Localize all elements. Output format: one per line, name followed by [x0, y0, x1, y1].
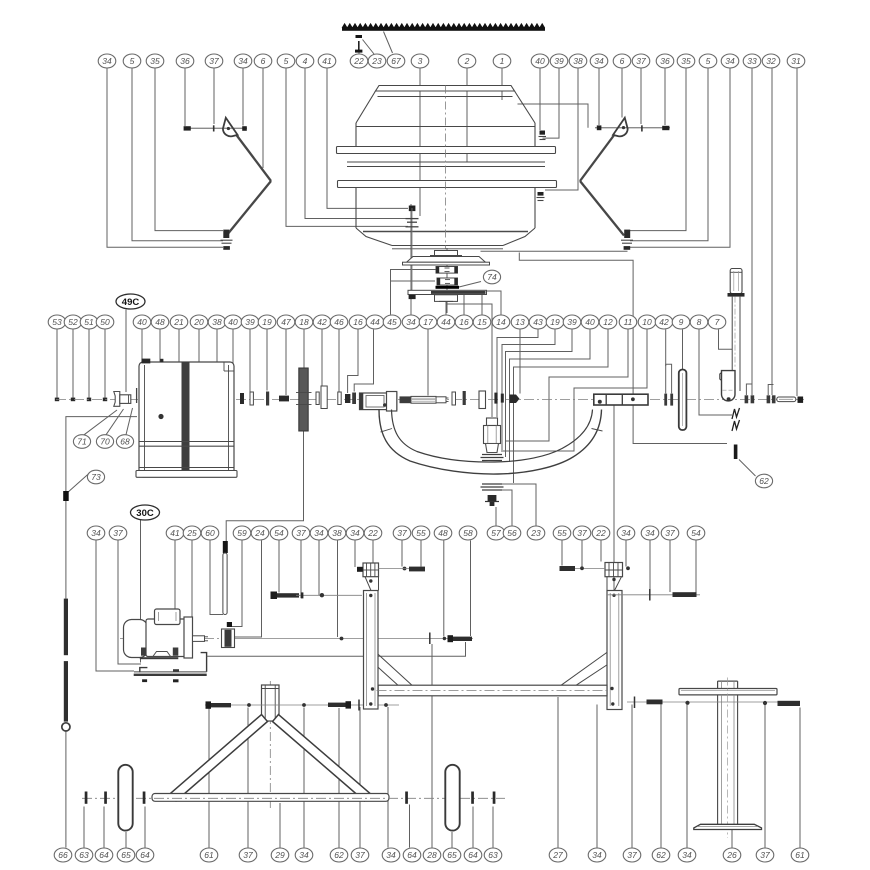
svg-text:34: 34 [406, 317, 416, 327]
svg-text:3: 3 [418, 56, 423, 66]
svg-text:43: 43 [533, 317, 543, 327]
svg-text:64: 64 [468, 850, 478, 860]
svg-text:58: 58 [463, 528, 473, 538]
svg-text:25: 25 [186, 528, 197, 538]
svg-text:34: 34 [725, 56, 735, 66]
svg-text:55: 55 [557, 528, 567, 538]
svg-text:37: 37 [113, 528, 123, 538]
svg-text:46: 46 [334, 317, 344, 327]
svg-text:39: 39 [567, 317, 577, 327]
svg-text:13: 13 [515, 317, 525, 327]
svg-text:23: 23 [371, 56, 382, 66]
svg-text:42: 42 [317, 317, 327, 327]
svg-text:28: 28 [426, 850, 437, 860]
svg-text:21: 21 [173, 317, 184, 327]
svg-text:44: 44 [370, 317, 380, 327]
svg-text:38: 38 [332, 528, 342, 538]
svg-text:34: 34 [238, 56, 248, 66]
svg-text:36: 36 [660, 56, 670, 66]
svg-text:62: 62 [759, 476, 769, 486]
svg-text:7: 7 [715, 317, 720, 327]
svg-text:40: 40 [228, 317, 238, 327]
svg-text:5: 5 [130, 56, 135, 66]
svg-text:63: 63 [79, 850, 89, 860]
svg-text:60: 60 [205, 528, 215, 538]
svg-text:34: 34 [592, 850, 602, 860]
svg-text:41: 41 [170, 528, 180, 538]
svg-text:16: 16 [353, 317, 363, 327]
svg-text:27: 27 [552, 850, 563, 860]
svg-text:34: 34 [594, 56, 604, 66]
svg-text:63: 63 [488, 850, 498, 860]
svg-text:37: 37 [627, 850, 637, 860]
svg-text:37: 37 [665, 528, 675, 538]
svg-text:22: 22 [353, 56, 364, 66]
svg-text:33: 33 [747, 56, 757, 66]
svg-text:47: 47 [281, 317, 291, 327]
svg-text:10: 10 [642, 317, 652, 327]
svg-text:34: 34 [350, 528, 360, 538]
svg-text:64: 64 [140, 850, 150, 860]
svg-text:65: 65 [447, 850, 457, 860]
svg-text:51: 51 [84, 317, 94, 327]
svg-text:67: 67 [391, 56, 401, 66]
svg-text:34: 34 [314, 528, 324, 538]
svg-text:66: 66 [58, 850, 68, 860]
svg-text:32: 32 [766, 56, 776, 66]
svg-text:42: 42 [659, 317, 669, 327]
svg-text:29: 29 [274, 850, 285, 860]
svg-text:34: 34 [102, 56, 112, 66]
svg-text:1: 1 [500, 56, 505, 66]
svg-text:9: 9 [679, 317, 684, 327]
svg-text:23: 23 [530, 528, 541, 538]
svg-text:6: 6 [261, 56, 266, 66]
svg-text:45: 45 [387, 317, 397, 327]
svg-text:54: 54 [274, 528, 284, 538]
svg-text:30C: 30C [136, 508, 154, 519]
svg-text:15: 15 [477, 317, 487, 327]
svg-text:26: 26 [726, 850, 737, 860]
svg-text:16: 16 [459, 317, 469, 327]
svg-text:56: 56 [507, 528, 517, 538]
svg-text:41: 41 [322, 56, 332, 66]
svg-text:14: 14 [496, 317, 506, 327]
svg-text:5: 5 [706, 56, 711, 66]
svg-text:37: 37 [760, 850, 770, 860]
svg-text:18: 18 [299, 317, 309, 327]
svg-text:24: 24 [254, 528, 265, 538]
svg-text:37: 37 [577, 528, 587, 538]
svg-text:71: 71 [77, 437, 87, 447]
svg-text:12: 12 [603, 317, 613, 327]
svg-text:62: 62 [656, 850, 666, 860]
svg-text:73: 73 [91, 472, 101, 482]
svg-text:38: 38 [573, 56, 583, 66]
svg-text:19: 19 [550, 317, 560, 327]
svg-text:40: 40 [585, 317, 595, 327]
svg-text:52: 52 [68, 317, 78, 327]
svg-text:39: 39 [245, 317, 255, 327]
svg-text:17: 17 [423, 317, 433, 327]
svg-text:64: 64 [99, 850, 109, 860]
svg-text:34: 34 [645, 528, 655, 538]
svg-text:34: 34 [299, 850, 309, 860]
svg-text:37: 37 [636, 56, 646, 66]
svg-text:54: 54 [691, 528, 701, 538]
svg-text:19: 19 [262, 317, 272, 327]
svg-text:34: 34 [386, 850, 396, 860]
svg-text:40: 40 [535, 56, 545, 66]
svg-text:22: 22 [595, 528, 606, 538]
svg-text:70: 70 [100, 437, 110, 447]
svg-text:34: 34 [621, 528, 631, 538]
svg-text:65: 65 [121, 850, 131, 860]
svg-text:37: 37 [397, 528, 407, 538]
svg-text:61: 61 [795, 850, 805, 860]
svg-text:74: 74 [487, 272, 497, 282]
svg-text:37: 37 [209, 56, 219, 66]
svg-text:34: 34 [91, 528, 101, 538]
svg-text:34: 34 [682, 850, 692, 860]
svg-text:11: 11 [624, 317, 633, 327]
svg-text:4: 4 [303, 56, 308, 66]
svg-text:38: 38 [212, 317, 222, 327]
svg-text:8: 8 [697, 317, 702, 327]
svg-text:22: 22 [367, 528, 378, 538]
svg-text:55: 55 [416, 528, 426, 538]
svg-text:68: 68 [120, 437, 130, 447]
svg-text:37: 37 [296, 528, 306, 538]
svg-text:59: 59 [237, 528, 247, 538]
svg-text:2: 2 [464, 56, 470, 66]
svg-text:49C: 49C [122, 297, 140, 308]
svg-text:35: 35 [681, 56, 691, 66]
svg-text:64: 64 [407, 850, 417, 860]
svg-text:50: 50 [100, 317, 110, 327]
svg-text:37: 37 [243, 850, 253, 860]
svg-text:57: 57 [491, 528, 501, 538]
svg-text:37: 37 [355, 850, 365, 860]
svg-text:62: 62 [334, 850, 344, 860]
svg-text:40: 40 [137, 317, 147, 327]
svg-text:53: 53 [52, 317, 62, 327]
svg-text:48: 48 [155, 317, 165, 327]
svg-text:44: 44 [441, 317, 451, 327]
svg-text:39: 39 [554, 56, 564, 66]
svg-text:36: 36 [180, 56, 190, 66]
svg-text:6: 6 [620, 56, 625, 66]
svg-text:48: 48 [438, 528, 448, 538]
svg-text:31: 31 [791, 56, 801, 66]
svg-text:61: 61 [204, 850, 214, 860]
svg-text:20: 20 [193, 317, 204, 327]
svg-text:35: 35 [150, 56, 160, 66]
svg-text:5: 5 [284, 56, 289, 66]
